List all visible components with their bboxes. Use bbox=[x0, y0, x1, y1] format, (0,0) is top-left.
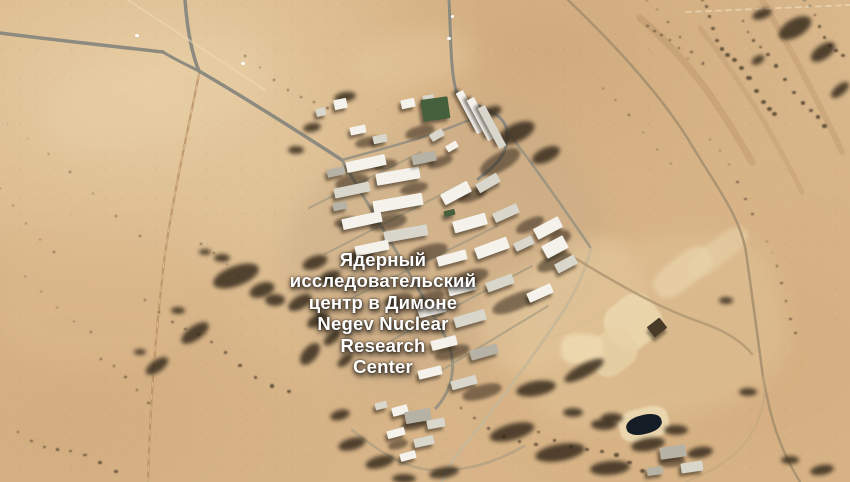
location-label-line-ru-1: Ядерный bbox=[290, 249, 476, 270]
facility-building bbox=[386, 427, 405, 439]
excavation-pit bbox=[647, 317, 668, 337]
location-label-line-ru-3: центр в Димоне bbox=[290, 292, 476, 313]
green-field bbox=[443, 209, 455, 218]
facility-building bbox=[526, 283, 554, 303]
location-label: Ядерный исследовательский центр в Димоне… bbox=[290, 249, 476, 377]
facility-building bbox=[341, 210, 382, 229]
facility-building bbox=[492, 203, 520, 223]
facility-building bbox=[554, 254, 578, 273]
vehicle-dot bbox=[451, 15, 454, 18]
facility-building bbox=[413, 435, 434, 448]
facility-building bbox=[374, 400, 387, 410]
facility-building bbox=[333, 181, 370, 198]
facility-building bbox=[647, 466, 664, 476]
facility-building bbox=[315, 107, 326, 117]
green-field bbox=[420, 96, 450, 122]
facility-building bbox=[474, 237, 510, 260]
satellite-image: Ядерный исследовательский центр в Димоне… bbox=[0, 0, 850, 482]
location-label-line-ru-2: исследовательский bbox=[290, 270, 476, 291]
vehicle-dot bbox=[241, 62, 245, 65]
facility-building bbox=[333, 98, 348, 110]
facility-building bbox=[345, 153, 386, 172]
vehicle-dot bbox=[447, 37, 451, 40]
location-label-line-en-2: Research bbox=[290, 335, 476, 356]
facility-building bbox=[513, 235, 535, 252]
facility-building bbox=[659, 444, 686, 460]
facility-building bbox=[383, 224, 428, 242]
location-label-line-en-1: Negev Nuclear bbox=[290, 313, 476, 334]
facility-buildings-layer bbox=[0, 0, 850, 482]
facility-building bbox=[440, 181, 472, 206]
facility-building bbox=[326, 166, 345, 178]
facility-building bbox=[400, 97, 416, 109]
facility-building bbox=[485, 274, 515, 293]
vehicle-dot bbox=[135, 34, 139, 37]
water-reservoir bbox=[624, 410, 664, 437]
facility-building bbox=[349, 124, 366, 135]
location-label-line-en-3: Center bbox=[290, 356, 476, 377]
facility-building bbox=[411, 151, 437, 166]
facility-building bbox=[372, 134, 387, 145]
facility-building bbox=[680, 461, 703, 474]
facility-building bbox=[375, 166, 420, 185]
facility-building bbox=[445, 140, 459, 152]
facility-building bbox=[541, 235, 569, 259]
facility-building bbox=[399, 450, 417, 462]
facility-building bbox=[475, 173, 501, 194]
facility-building bbox=[429, 128, 445, 142]
facility-building bbox=[452, 213, 488, 234]
facility-building bbox=[332, 201, 347, 212]
